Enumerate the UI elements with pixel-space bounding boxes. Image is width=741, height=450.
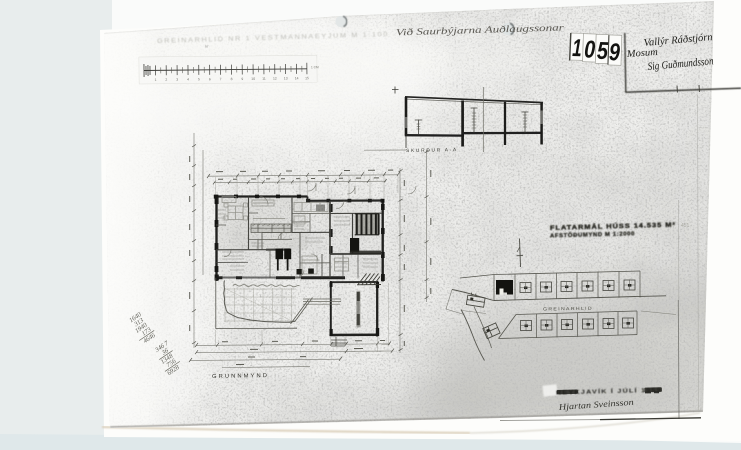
svg-text:1: 1 [572,35,582,62]
svg-text:9: 9 [609,39,621,66]
svg-text:1: 1 [155,78,157,82]
svg-text:10: 10 [251,77,255,81]
svg-text:14: 14 [295,76,299,80]
svg-text:13: 13 [284,76,288,80]
svg-text:SKURÐUR A-A: SKURÐUR A-A [406,147,458,153]
svg-text:8: 8 [231,77,233,81]
svg-text:GRUNNMYND: GRUNNMYND [212,373,269,380]
svg-text:Mosum: Mosum [625,47,658,60]
svg-text:3: 3 [176,78,178,82]
svg-text:7: 7 [220,77,222,81]
svg-text:11: 11 [262,77,266,81]
svg-text:1 CM: 1 CM [311,65,319,69]
svg-text:2: 2 [165,78,167,82]
svg-text:0: 0 [584,36,596,63]
svg-text:4: 4 [187,78,189,82]
svg-text:15: 15 [305,76,309,80]
svg-text:451: 451 [681,223,690,229]
svg-text:9: 9 [241,77,243,81]
svg-text:6: 6 [209,77,211,81]
svg-text:GREINARHLID: GREINARHLID [543,306,593,312]
svg-text:5: 5 [597,38,609,65]
svg-text:12: 12 [273,77,277,81]
svg-text:5: 5 [198,77,200,81]
